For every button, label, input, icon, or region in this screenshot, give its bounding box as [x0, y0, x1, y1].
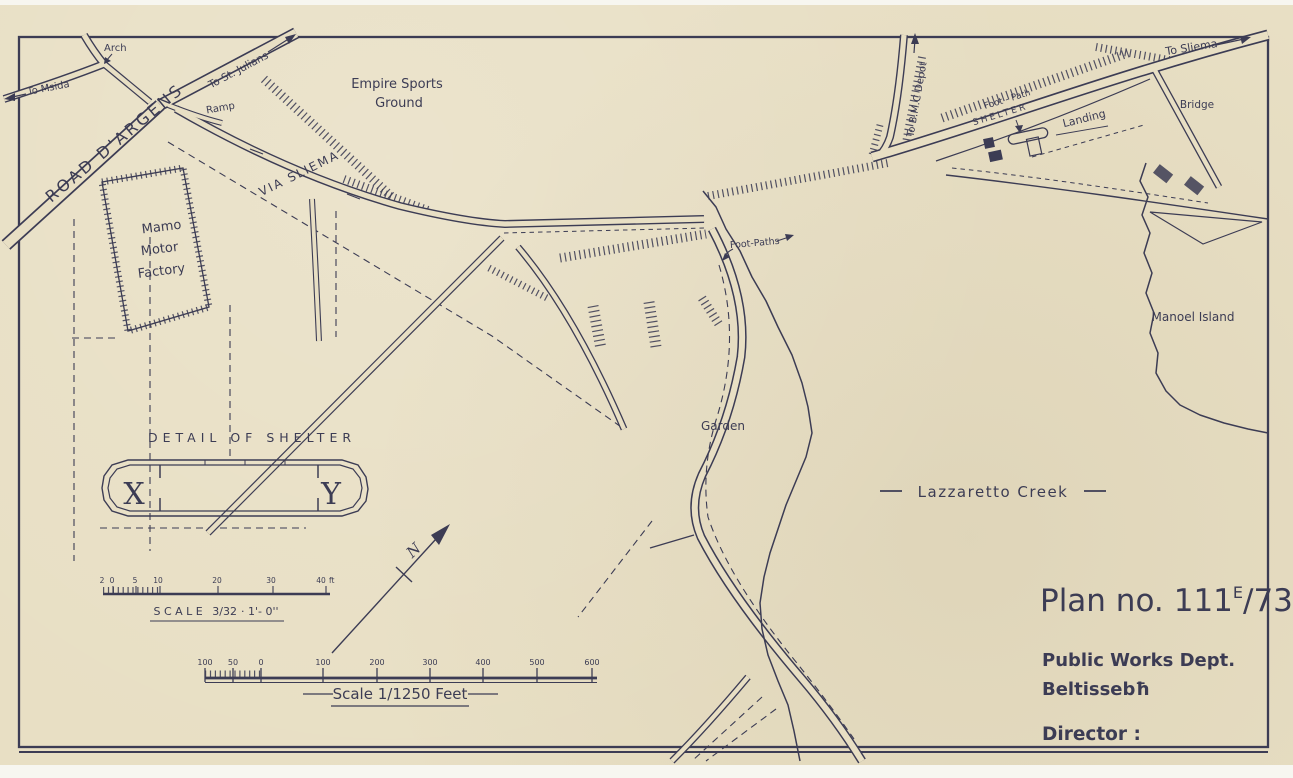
- scale-large-tick-label: 400: [475, 658, 490, 667]
- department-label: Public Works Dept.: [1042, 650, 1235, 671]
- shore-building: [988, 150, 1003, 162]
- shelter-plan-shape: [1007, 127, 1048, 145]
- scale-bar-small: 2 0 5 10 20 30 40 ft SCALE3/32· 1'- 0'': [100, 576, 335, 621]
- scale-large-tick-label: 200: [369, 658, 384, 667]
- scale-small-tick-label: 2: [100, 576, 105, 585]
- factory-label-3: Factory: [137, 261, 186, 282]
- scale-small-caption-label: SCALE: [153, 605, 206, 618]
- ramp-label: Ramp: [205, 101, 235, 117]
- road-inner: [176, 109, 704, 224]
- garden-label: Garden: [701, 419, 745, 433]
- culvert-tick: [650, 535, 694, 548]
- arch-label: Arch: [104, 43, 127, 54]
- shore-building: [983, 137, 995, 149]
- scale-large-caption: Scale 1/1250 Feet: [333, 685, 468, 703]
- road-via-sliema-path: [176, 109, 704, 224]
- bridge-label: Bridge: [1180, 99, 1214, 111]
- hachure-wedge: [593, 306, 601, 349]
- empire-label-2: Ground: [375, 96, 423, 111]
- hachure-band: [708, 163, 888, 196]
- factory-label-2: Motor: [140, 240, 180, 260]
- boundary-dash-long: [168, 142, 624, 429]
- road-inner: [208, 238, 502, 533]
- island-building: [1184, 176, 1204, 195]
- scale-small-caption: SCALE3/32· 1'- 0'': [153, 605, 278, 618]
- road-inner: [672, 677, 748, 761]
- hachure-wedge: [702, 298, 720, 326]
- scale-large-tick-label: 100: [197, 658, 212, 667]
- director-label: Director :: [1042, 724, 1141, 745]
- shelter-x-label: X: [123, 477, 145, 512]
- scale-large-tick-label: 300: [422, 658, 437, 667]
- road-south-leg-path: [518, 247, 624, 429]
- road-inner: [872, 35, 1268, 157]
- scale-small-tick-label: 20: [212, 576, 222, 585]
- shore-structures: [983, 127, 1049, 162]
- map-canvas: Mamo Motor Factory To Msida Arch To St. …: [0, 5, 1293, 778]
- hachures: [264, 47, 1180, 349]
- scale-small-tick-label: 30: [266, 576, 276, 585]
- plan-sheet: Mamo Motor Factory To Msida Arch To St. …: [0, 5, 1293, 765]
- scale-large-tick-label: 50: [228, 658, 238, 667]
- landing-label: Landing: [1061, 107, 1107, 130]
- empire-label-1: Empire Sports: [351, 77, 443, 92]
- shelter-y-label: Y: [320, 477, 342, 512]
- mamo-factory: Mamo Motor Factory: [102, 168, 209, 331]
- scale-large-tick-label: 500: [529, 658, 544, 667]
- creek-road-center-dash: [706, 265, 854, 739]
- plan-no-sup: E: [1233, 583, 1243, 602]
- location-label: Beltissebħ: [1042, 679, 1150, 700]
- scale-small-unit: ft: [329, 576, 335, 585]
- border-frame: [19, 37, 1268, 752]
- north-arrow-line: [332, 528, 446, 653]
- branch-dash: [578, 521, 652, 617]
- scale-large-tick-label: 600: [584, 658, 599, 667]
- scale-small-caption-ratio: 3/32: [212, 605, 237, 618]
- to-bmc-depot-label: To B.M.C Depot: [905, 61, 929, 139]
- title-block: Plan no.111E/73 Public Works Dept. Belti…: [1040, 583, 1293, 745]
- island-building: [1153, 164, 1173, 183]
- shelter-detail-title: DETAIL OF SHELTER: [148, 430, 356, 445]
- road-center-dash: [504, 228, 706, 233]
- foot-paths-label: Foot-Paths: [730, 236, 781, 251]
- factory-label-1: Mamo: [141, 218, 182, 238]
- scale-small-tick-label: 5: [133, 576, 138, 585]
- scale-bar-large: 100 50 0 100 200 300 400 500 600 Scale 1…: [197, 658, 599, 706]
- scale-large-tick-label: 0: [258, 658, 263, 667]
- hachure-wedge: [649, 302, 656, 347]
- hachure-band: [560, 234, 706, 258]
- frame-rect: [19, 37, 1268, 747]
- plan-number: Plan no.111E/73: [1040, 583, 1293, 619]
- scale-small-tick-label: 10: [153, 576, 163, 585]
- plan-no-prefix: Plan no.: [1040, 583, 1164, 619]
- island-slipway-outline: [1150, 212, 1262, 244]
- north-arrow: N: [332, 524, 450, 653]
- manoel-island-label: Manoel Island: [1152, 310, 1235, 324]
- scale-small-tick-label: 0: [110, 576, 115, 585]
- foot-path-line: [936, 79, 1150, 161]
- road-inner: [104, 64, 150, 102]
- road-inner: [84, 35, 104, 64]
- scale-small-tick-label: 40: [316, 576, 326, 585]
- foot-paths-arrow-right-head: [785, 234, 794, 241]
- plot-boundaries: [72, 142, 706, 617]
- road-dargens-label: ROAD D'ARGENS: [42, 80, 188, 207]
- north-letter: N: [402, 539, 425, 562]
- scale-large-tick-label: 100: [315, 658, 330, 667]
- scale-small-caption-rest: · 1'- 0'': [241, 605, 279, 618]
- plan-no-main: 111: [1174, 583, 1233, 619]
- plan-no-rest: /73: [1243, 583, 1293, 619]
- lazzaretto-creek-label: Lazzaretto Creek: [918, 483, 1069, 501]
- bmc-arrow-head: [911, 33, 919, 44]
